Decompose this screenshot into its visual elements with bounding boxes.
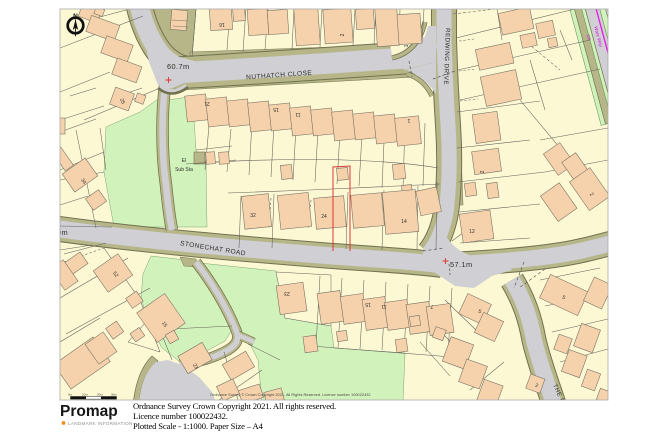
svg-text:57.1m: 57.1m <box>450 260 473 269</box>
svg-text:24: 24 <box>321 214 327 220</box>
svg-text:Promap: Promap <box>60 403 118 420</box>
svg-text:Licence number 100022432.: Licence number 100022432. <box>133 411 228 421</box>
svg-text:Sub Sta: Sub Sta <box>175 167 193 173</box>
svg-text:7: 7 <box>430 303 433 309</box>
svg-text:LANDMARK INFORMATION: LANDMARK INFORMATION <box>68 421 133 426</box>
svg-text:Plotted Scale - 1:1000. Paper: Plotted Scale - 1:1000. Paper Size – A4 <box>133 421 264 431</box>
svg-text:2: 2 <box>340 33 346 36</box>
svg-text:Ordnance Survey © Crown Copyri: Ordnance Survey © Crown Copyright 2021. … <box>210 392 371 397</box>
svg-text:0m: 0m <box>68 393 73 397</box>
svg-text:30m: 30m <box>111 393 117 397</box>
svg-text:El: El <box>182 158 186 164</box>
svg-text:15: 15 <box>365 301 371 307</box>
svg-text:Ordnance Survey Crown Copyrigh: Ordnance Survey Crown Copyright 2021. Al… <box>133 401 336 411</box>
svg-text:1: 1 <box>407 117 410 123</box>
svg-text:10m: 10m <box>82 393 88 397</box>
svg-text:23: 23 <box>284 290 290 296</box>
svg-text:11: 11 <box>295 111 300 117</box>
svg-text:12: 12 <box>469 229 475 235</box>
svg-text:32: 32 <box>250 213 256 219</box>
svg-text:16: 16 <box>219 21 225 27</box>
svg-text:21: 21 <box>204 100 210 106</box>
svg-text:20m: 20m <box>97 393 103 397</box>
svg-text:14: 14 <box>401 219 407 225</box>
svg-text:1: 1 <box>404 44 410 47</box>
svg-text:15: 15 <box>273 106 279 112</box>
svg-text:N: N <box>73 13 78 20</box>
svg-text:60.7m: 60.7m <box>167 62 190 71</box>
svg-text:2: 2 <box>480 170 486 173</box>
svg-text:11: 11 <box>381 303 386 309</box>
